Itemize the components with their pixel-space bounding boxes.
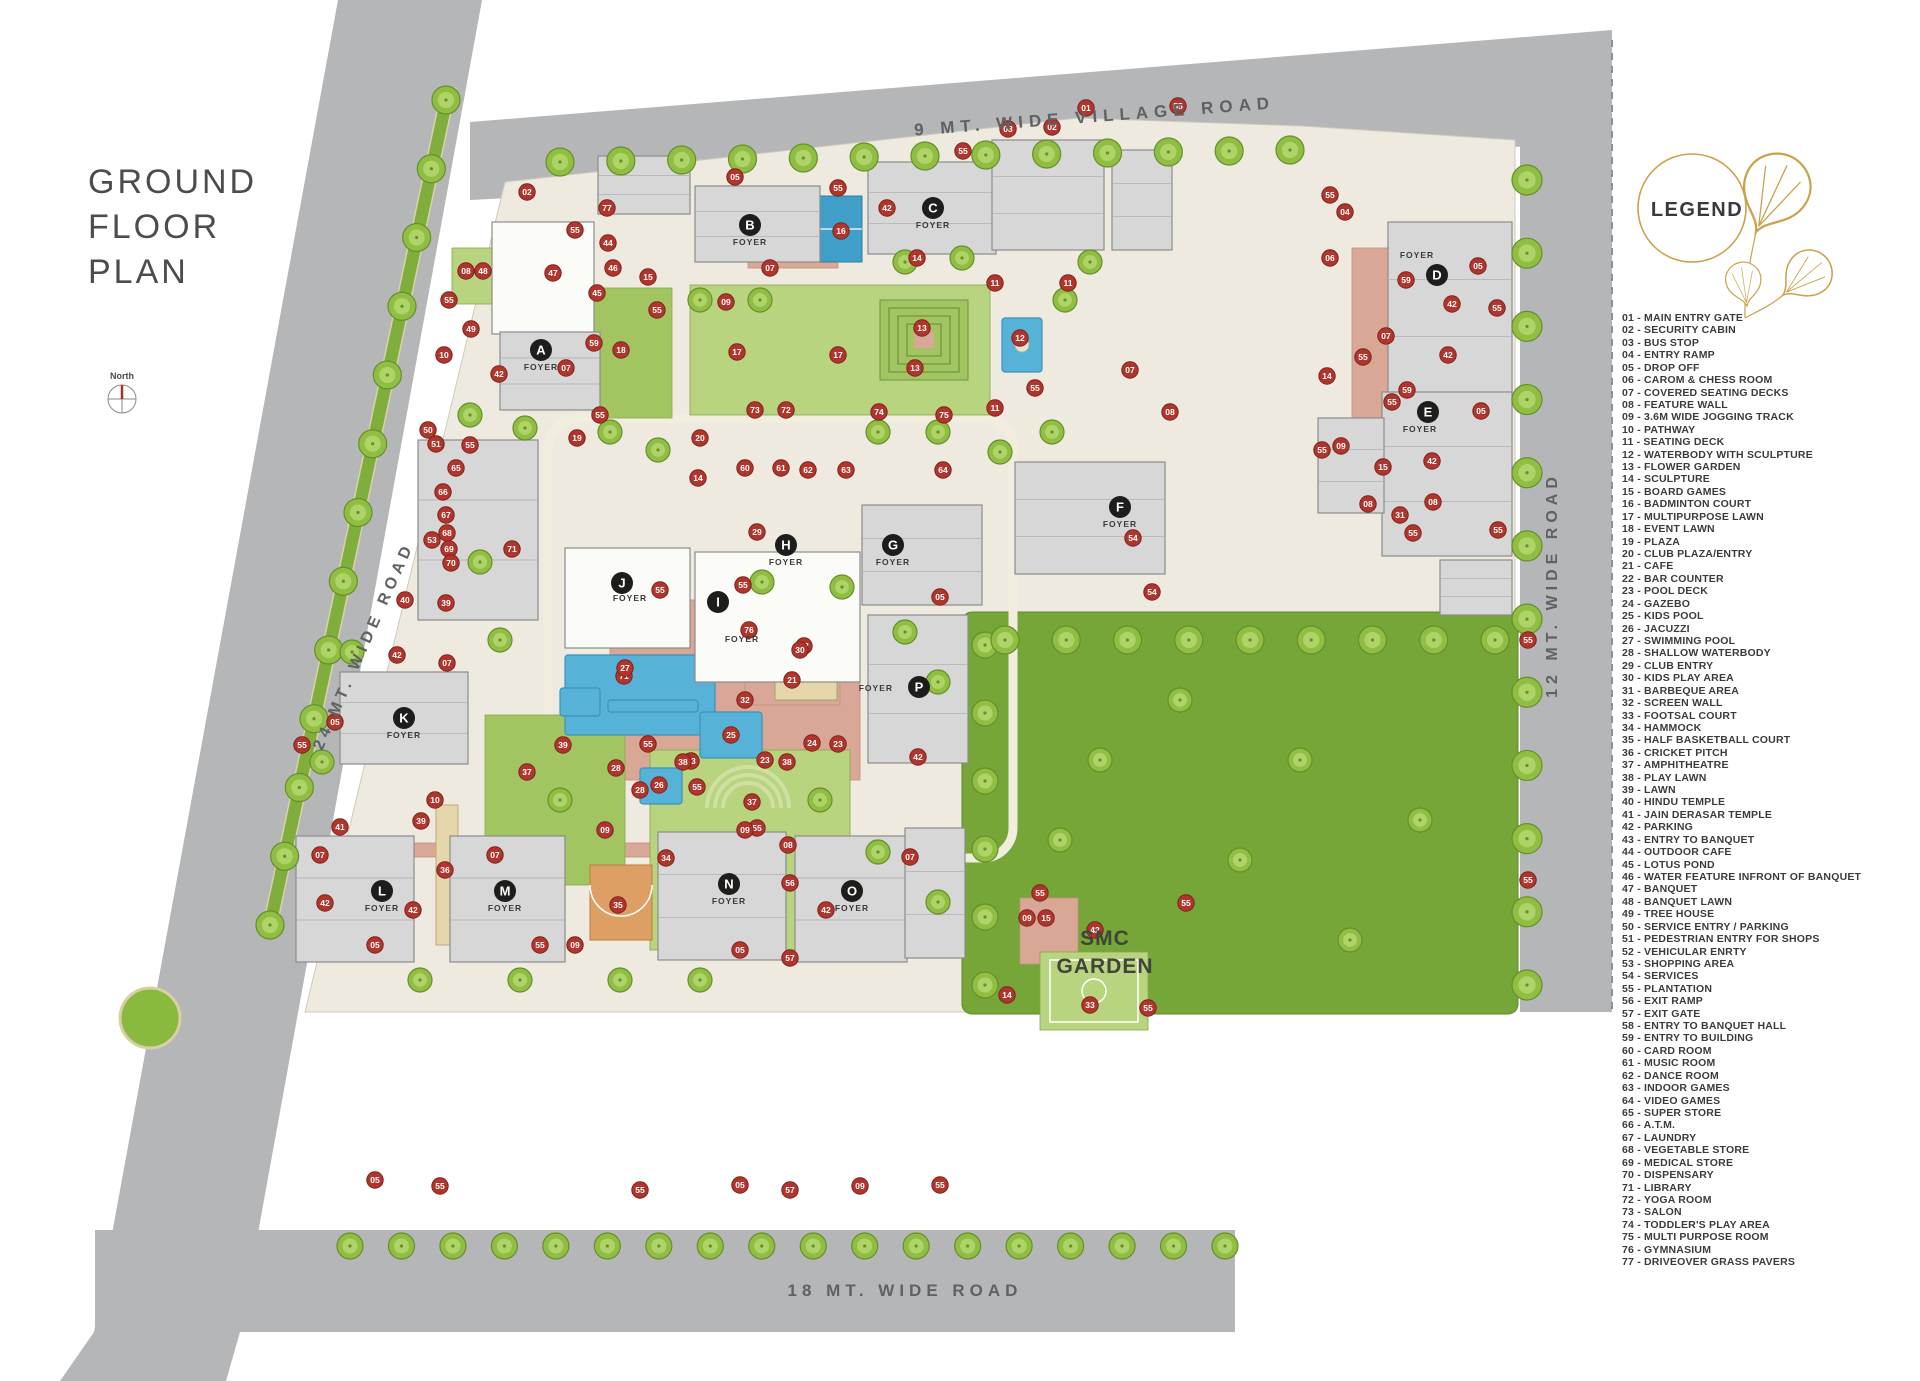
legend-item: 72 - YOGA ROOM [1622, 1194, 1918, 1206]
tree-icon [1048, 828, 1072, 852]
plan-marker-55: 55 [1140, 1000, 1156, 1016]
plan-marker-62: 62 [800, 462, 816, 478]
tree-icon [972, 972, 998, 998]
plan-marker-53: 53 [424, 532, 440, 548]
plan-marker-55: 55 [1314, 442, 1330, 458]
legend-item: 63 - INDOOR GAMES [1622, 1082, 1918, 1094]
legend-item: 73 - SALON [1622, 1206, 1918, 1218]
tree-icon [607, 147, 635, 175]
tree-icon [1512, 824, 1542, 854]
plan-marker-09: 09 [597, 822, 613, 838]
tree-icon [972, 768, 998, 794]
tree-icon [972, 904, 998, 930]
tree-icon [594, 1233, 620, 1259]
plan-marker-09: 09 [1019, 910, 1035, 926]
legend-item: 11 - SEATING DECK [1622, 436, 1918, 448]
svg-text:23: 23 [760, 755, 770, 765]
plan-marker-70: 70 [443, 555, 459, 571]
legend-item: 74 - TODDLER'S PLAY AREA [1622, 1219, 1918, 1231]
plan-marker-55: 55 [1520, 872, 1536, 888]
plan-marker-14: 14 [999, 987, 1015, 1003]
svg-text:08: 08 [1165, 407, 1175, 417]
svg-text:15: 15 [1378, 462, 1388, 472]
svg-text:68: 68 [442, 528, 452, 538]
tree-icon [697, 1233, 723, 1259]
svg-text:59: 59 [589, 338, 599, 348]
plan-marker-14: 14 [1319, 368, 1335, 384]
svg-text:60: 60 [740, 463, 750, 473]
plan-marker-56: 56 [782, 875, 798, 891]
svg-text:49: 49 [466, 324, 476, 334]
svg-text:04: 04 [1340, 207, 1350, 217]
plan-marker-19: 19 [569, 430, 585, 446]
legend-item: 15 - BOARD GAMES [1622, 486, 1918, 498]
roundabout-lawn [120, 988, 180, 1048]
legend-item: 38 - PLAY LAWN [1622, 772, 1918, 784]
plan-marker-44: 44 [600, 235, 616, 251]
tree-icon [1338, 928, 1362, 952]
tree-icon [866, 420, 890, 444]
plan-marker-37: 37 [744, 794, 760, 810]
svg-text:A: A [536, 343, 546, 358]
plan-marker-39: 39 [555, 737, 571, 753]
svg-text:34: 34 [661, 853, 671, 863]
plan-marker-35: 35 [610, 897, 626, 913]
svg-text:13: 13 [917, 323, 927, 333]
tree-icon [1228, 848, 1252, 872]
legend-item: 66 - A.T.M. [1622, 1119, 1918, 1131]
plan-marker-55: 55 [432, 1178, 448, 1194]
plan-marker-20: 20 [692, 430, 708, 446]
svg-text:North: North [110, 371, 134, 381]
tree-icon [315, 636, 343, 664]
svg-text:55: 55 [1493, 525, 1503, 535]
plan-marker-07: 07 [1122, 362, 1138, 378]
svg-text:42: 42 [408, 905, 418, 915]
plan-marker-05: 05 [367, 1172, 383, 1188]
svg-text:65: 65 [451, 463, 461, 473]
tree-icon [1236, 626, 1264, 654]
tree-icon [285, 774, 313, 802]
legend-item: 54 - SERVICES [1622, 970, 1918, 982]
plan-marker-09: 09 [737, 822, 753, 838]
tree-icon [1212, 1233, 1238, 1259]
legend-item: 46 - WATER FEATURE INFRONT OF BANQUET [1622, 871, 1918, 883]
legend-item: 55 - PLANTATION [1622, 983, 1918, 995]
svg-text:42: 42 [821, 905, 831, 915]
svg-text:07: 07 [1125, 365, 1135, 375]
page-title-line2: FLOOR [88, 205, 257, 250]
tree-icon [373, 361, 401, 389]
svg-text:55: 55 [535, 940, 545, 950]
svg-text:09: 09 [1022, 913, 1032, 923]
legend-item: 20 - CLUB PLAZA/ENTRY [1622, 548, 1918, 560]
svg-text:05: 05 [935, 592, 945, 602]
plan-marker-07: 07 [762, 260, 778, 276]
svg-text:10: 10 [439, 350, 449, 360]
svg-text:05: 05 [370, 1175, 380, 1185]
plan-marker-59: 59 [1398, 272, 1414, 288]
svg-text:E: E [1424, 405, 1433, 420]
page-title: GROUND FLOOR PLAN [88, 160, 257, 295]
plan-marker-21: 21 [784, 672, 800, 688]
svg-text:55: 55 [1387, 397, 1397, 407]
tree-icon [1094, 139, 1122, 167]
ginkgo-leaf-icon [1723, 260, 1764, 309]
plan-marker-42: 42 [317, 895, 333, 911]
svg-text:54: 54 [1147, 587, 1157, 597]
plan-marker-05: 05 [1473, 403, 1489, 419]
svg-text:33: 33 [1085, 1000, 1095, 1010]
svg-text:46: 46 [608, 263, 618, 273]
plan-marker-42: 42 [1424, 453, 1440, 469]
svg-text:64: 64 [938, 465, 948, 475]
svg-text:23: 23 [833, 739, 843, 749]
tree-icon [1420, 626, 1448, 654]
svg-text:55: 55 [570, 225, 580, 235]
plan-marker-55: 55 [1520, 632, 1536, 648]
plan-marker-07: 07 [312, 847, 328, 863]
svg-text:42: 42 [882, 203, 892, 213]
tree-icon [850, 143, 878, 171]
plan-marker-59: 59 [586, 335, 602, 351]
tree-icon [668, 146, 696, 174]
svg-text:70: 70 [446, 558, 456, 568]
plan-marker-42: 42 [405, 902, 421, 918]
svg-text:73: 73 [750, 405, 760, 415]
legend-item: 27 - SWIMMING POOL [1622, 635, 1918, 647]
legend-item: 69 - MEDICAL STORE [1622, 1157, 1918, 1169]
plan-marker-72: 72 [778, 402, 794, 418]
legend-item: 21 - CAFE [1622, 560, 1918, 572]
tree-icon [950, 246, 974, 270]
svg-text:67: 67 [441, 510, 451, 520]
plan-marker-29: 29 [749, 524, 765, 540]
legend-item: 58 - ENTRY TO BANQUET HALL [1622, 1020, 1918, 1032]
plan-marker-42: 42 [389, 647, 405, 663]
plan-marker-66: 66 [435, 484, 451, 500]
svg-text:56: 56 [785, 878, 795, 888]
plan-marker-55: 55 [632, 1182, 648, 1198]
svg-text:53: 53 [427, 535, 437, 545]
svg-text:69: 69 [444, 544, 454, 554]
svg-text:FOYER: FOYER [1403, 424, 1437, 434]
plan-marker-55: 55 [592, 407, 608, 423]
waterbody [560, 688, 600, 716]
svg-text:55: 55 [738, 580, 748, 590]
legend-item: 65 - SUPER STORE [1622, 1107, 1918, 1119]
tree-icon [646, 1233, 672, 1259]
tree-icon [488, 628, 512, 652]
plan-marker-54: 54 [1144, 584, 1160, 600]
tree-icon [1512, 458, 1542, 488]
plan-marker-73: 73 [747, 402, 763, 418]
tree-icon [991, 626, 1019, 654]
svg-text:H: H [781, 538, 790, 553]
plan-marker-05: 05 [1470, 258, 1486, 274]
plan-marker-05: 05 [932, 589, 948, 605]
building-block [418, 440, 538, 620]
plan-marker-36: 36 [437, 862, 453, 878]
tree-icon [1512, 897, 1542, 927]
plan-marker-55: 55 [735, 577, 751, 593]
svg-text:42: 42 [1443, 350, 1453, 360]
svg-text:FOYER: FOYER [725, 634, 759, 644]
tree-icon [866, 840, 890, 864]
svg-text:66: 66 [438, 487, 448, 497]
svg-text:55: 55 [1408, 528, 1418, 538]
plan-marker-12: 12 [1012, 330, 1028, 346]
svg-text:10: 10 [430, 795, 440, 805]
svg-text:59: 59 [1401, 275, 1411, 285]
svg-text:06: 06 [1325, 253, 1335, 263]
legend-item: 67 - LAUNDRY [1622, 1132, 1918, 1144]
plan-marker-77: 77 [599, 200, 615, 216]
plan-marker-23: 23 [830, 736, 846, 752]
svg-text:FOYER: FOYER [916, 220, 950, 230]
tree-icon [750, 570, 774, 594]
svg-text:39: 39 [441, 598, 451, 608]
plan-marker-55: 55 [932, 1177, 948, 1193]
plan-marker-05: 05 [732, 1177, 748, 1193]
plan-marker-05: 05 [367, 937, 383, 953]
svg-text:55: 55 [958, 146, 968, 156]
plan-marker-75: 75 [936, 407, 952, 423]
smc-garden-label: SMC [1080, 927, 1130, 950]
svg-text:20: 20 [695, 433, 705, 443]
svg-text:42: 42 [494, 369, 504, 379]
plan-marker-55: 55 [1178, 895, 1194, 911]
svg-text:05: 05 [730, 172, 740, 182]
svg-text:FOYER: FOYER [488, 903, 522, 913]
legend-item: 71 - LIBRARY [1622, 1182, 1918, 1194]
svg-text:75: 75 [939, 410, 949, 420]
legend-item: 18 - EVENT LAWN [1622, 523, 1918, 535]
plan-marker-14: 14 [909, 250, 925, 266]
svg-text:42: 42 [1427, 456, 1437, 466]
tree-icon [608, 968, 632, 992]
svg-text:C: C [928, 201, 938, 216]
building-block [1015, 462, 1165, 574]
plan-marker-28: 28 [608, 760, 624, 776]
tree-icon [688, 288, 712, 312]
svg-text:09: 09 [1336, 441, 1346, 451]
svg-text:55: 55 [435, 1181, 445, 1191]
legend-item: 48 - BANQUET LAWN [1622, 896, 1918, 908]
svg-text:14: 14 [1002, 990, 1012, 1000]
tree-icon [1175, 626, 1203, 654]
tree-icon [1006, 1233, 1032, 1259]
svg-text:FOYER: FOYER [859, 683, 893, 693]
legend-item: 43 - ENTRY TO BANQUET [1622, 834, 1918, 846]
tree-icon [1078, 250, 1102, 274]
plan-marker-15: 15 [1375, 459, 1391, 475]
legend-item: 23 - POOL DECK [1622, 585, 1918, 597]
legend-item: 40 - HINDU TEMPLE [1622, 796, 1918, 808]
svg-text:11: 11 [991, 278, 1000, 288]
legend-item: 64 - VIDEO GAMES [1622, 1095, 1918, 1107]
plan-marker-55: 55 [1490, 522, 1506, 538]
svg-text:15: 15 [1041, 913, 1051, 923]
svg-text:41: 41 [335, 822, 345, 832]
tree-icon [808, 788, 832, 812]
tree-icon [1215, 137, 1243, 165]
svg-text:07: 07 [490, 850, 500, 860]
svg-text:42: 42 [320, 898, 330, 908]
plan-marker-07: 07 [902, 849, 918, 865]
plan-marker-08: 08 [1162, 404, 1178, 420]
svg-text:55: 55 [1317, 445, 1327, 455]
legend-item: 56 - EXIT RAMP [1622, 995, 1918, 1007]
legend-item: 53 - SHOPPING AREA [1622, 958, 1918, 970]
tree-icon [1058, 1233, 1084, 1259]
svg-text:09: 09 [570, 940, 580, 950]
plan-marker-71: 71 [504, 541, 520, 557]
legend-item: 51 - PEDESTRIAN ENTRY FOR SHOPS [1622, 933, 1918, 945]
svg-text:F: F [1116, 500, 1124, 515]
svg-text:51: 51 [431, 439, 441, 449]
svg-text:47: 47 [548, 268, 558, 278]
legend-title: LEGEND [1651, 199, 1743, 221]
tree-icon [852, 1233, 878, 1259]
svg-text:50: 50 [423, 425, 433, 435]
plan-marker-10: 10 [427, 792, 443, 808]
tree-icon [1114, 626, 1142, 654]
plan-marker-67: 67 [438, 507, 454, 523]
legend-item: 34 - HAMMOCK [1622, 722, 1918, 734]
svg-text:39: 39 [416, 816, 426, 826]
plan-marker-55: 55 [1322, 187, 1338, 203]
svg-text:07: 07 [905, 852, 915, 862]
svg-text:FOYER: FOYER [365, 903, 399, 913]
svg-text:FOYER: FOYER [1400, 250, 1434, 260]
svg-text:55: 55 [635, 1185, 645, 1195]
legend-item: 57 - EXIT GATE [1622, 1008, 1918, 1020]
tree-icon [1088, 748, 1112, 772]
svg-text:55: 55 [1523, 635, 1533, 645]
plan-marker-14: 14 [690, 470, 706, 486]
svg-text:17: 17 [833, 350, 843, 360]
plan-marker-28: 28 [632, 782, 648, 798]
legend-item: 02 - SECURITY CABIN [1622, 324, 1918, 336]
legend-item: 24 - GAZEBO [1622, 598, 1918, 610]
tree-icon [789, 144, 817, 172]
legend-item: 04 - ENTRY RAMP [1622, 349, 1918, 361]
legend-item: 31 - BARBEQUE AREA [1622, 685, 1918, 697]
tree-icon [903, 1233, 929, 1259]
tree-icon [1408, 808, 1432, 832]
svg-text:J: J [618, 576, 625, 591]
svg-text:14: 14 [1322, 371, 1332, 381]
plan-marker-38: 38 [779, 754, 795, 770]
legend-item: 01 - MAIN ENTRY GATE [1622, 312, 1918, 324]
plan-marker-42: 42 [491, 366, 507, 382]
legend-item: 33 - FOOTSAL COURT [1622, 710, 1918, 722]
tree-icon [408, 968, 432, 992]
tree-icon [543, 1233, 569, 1259]
svg-text:31: 31 [1395, 510, 1405, 520]
road-label-right: 12 MT. WIDE ROAD [1544, 472, 1561, 698]
svg-text:55: 55 [1030, 383, 1040, 393]
legend-item: 59 - ENTRY TO BUILDING [1622, 1032, 1918, 1044]
plan-marker-55: 55 [567, 222, 583, 238]
plan-marker-07: 07 [487, 847, 503, 863]
plan-marker-41: 41 [332, 819, 348, 835]
plan-marker-45: 45 [589, 285, 605, 301]
svg-text:57: 57 [785, 1185, 795, 1195]
svg-text:08: 08 [1363, 499, 1373, 509]
ground-floor-plan-page: 0102035555055542160709550277444645084847… [0, 0, 1920, 1381]
legend-item: 29 - CLUB ENTRY [1622, 660, 1918, 672]
svg-text:B: B [745, 218, 754, 233]
plan-marker-55: 55 [1027, 380, 1043, 396]
plan-marker-13: 13 [914, 320, 930, 336]
plan-marker-06: 06 [1322, 250, 1338, 266]
svg-text:27: 27 [620, 663, 630, 673]
plan-marker-55: 55 [441, 292, 457, 308]
legend-item: 62 - DANCE ROOM [1622, 1070, 1918, 1082]
legend-item: 37 - AMPHITHEATRE [1622, 759, 1918, 771]
plan-marker-49: 49 [463, 321, 479, 337]
svg-text:24: 24 [807, 738, 817, 748]
legend-item: 19 - PLAZA [1622, 536, 1918, 548]
tree-icon [972, 700, 998, 726]
plan-marker-09: 09 [718, 294, 734, 310]
tree-icon [1481, 626, 1509, 654]
svg-text:FOYER: FOYER [712, 896, 746, 906]
plan-marker-24: 24 [804, 735, 820, 751]
plan-marker-55: 55 [1355, 349, 1371, 365]
tree-icon [1288, 748, 1312, 772]
plan-marker-55: 55 [830, 180, 846, 196]
legend-item: 05 - DROP OFF [1622, 362, 1918, 374]
svg-text:37: 37 [747, 797, 757, 807]
svg-text:30: 30 [795, 645, 805, 655]
svg-text:05: 05 [370, 940, 380, 950]
plan-marker-42: 42 [1444, 296, 1460, 312]
svg-text:48: 48 [478, 266, 488, 276]
building-block [862, 505, 982, 605]
svg-text:55: 55 [1358, 352, 1368, 362]
svg-text:26: 26 [654, 780, 664, 790]
svg-text:09: 09 [855, 1181, 865, 1191]
svg-text:55: 55 [444, 295, 454, 305]
svg-text:K: K [399, 711, 409, 726]
legend-item: 32 - SCREEN WALL [1622, 697, 1918, 709]
plan-marker-02: 02 [519, 184, 535, 200]
svg-text:55: 55 [1181, 898, 1191, 908]
svg-text:59: 59 [1402, 385, 1412, 395]
plan-marker-47: 47 [545, 265, 561, 281]
svg-text:28: 28 [611, 763, 621, 773]
tree-icon [468, 550, 492, 574]
plan-marker-17: 17 [729, 344, 745, 360]
svg-text:29: 29 [752, 527, 762, 537]
tree-icon [548, 788, 572, 812]
svg-text:55: 55 [1325, 190, 1335, 200]
tree-icon [1359, 626, 1387, 654]
legend-item: 60 - CARD ROOM [1622, 1045, 1918, 1057]
plan-marker-16: 16 [833, 223, 849, 239]
tree-icon [688, 968, 712, 992]
legend-item: 77 - DRIVEOVER GRASS PAVERS [1622, 1256, 1918, 1268]
plan-marker-55: 55 [1032, 885, 1048, 901]
plan-marker-63: 63 [838, 462, 854, 478]
svg-text:O: O [847, 884, 857, 899]
svg-text:19: 19 [572, 433, 582, 443]
svg-text:09: 09 [721, 297, 731, 307]
svg-text:55: 55 [833, 183, 843, 193]
